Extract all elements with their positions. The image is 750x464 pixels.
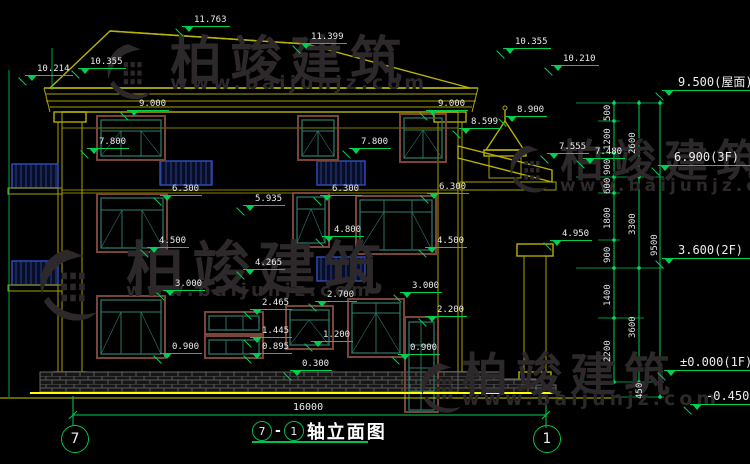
left-column bbox=[54, 112, 86, 393]
elevation-label: 4.800 bbox=[322, 225, 364, 237]
elevation-label: 2.200 bbox=[425, 305, 467, 317]
title-underline bbox=[252, 441, 368, 443]
storey-level-label: 6.900(3F) bbox=[658, 151, 750, 166]
storey-level-label: ±0.000(1F) bbox=[664, 356, 750, 371]
elevation-label: 0.900 bbox=[160, 342, 202, 354]
cad-canvas: 柏竣建筑 www.baijunjz.com 柏竣建筑 www.baijunjz.… bbox=[0, 0, 750, 464]
chain-dim: 900 bbox=[603, 159, 613, 175]
storey-level-label: -0.450 bbox=[690, 390, 750, 405]
elevation-label: 10.355 bbox=[78, 57, 126, 69]
chain-dim: 1200 bbox=[603, 128, 613, 150]
elevation-label: 10.214 bbox=[25, 64, 73, 76]
axis-bubble-right: 1 bbox=[533, 425, 561, 453]
total-width-dim: 16000 bbox=[293, 402, 323, 413]
elevation-label: 6.300 bbox=[160, 184, 202, 196]
elevation-label: 11.763 bbox=[182, 15, 230, 27]
storey-level-label: 3.600(2F) bbox=[662, 244, 750, 259]
window bbox=[356, 196, 436, 254]
title-axis-left: 7 bbox=[252, 421, 272, 441]
porch-column bbox=[517, 244, 553, 386]
elevation-label: 8.900 bbox=[505, 105, 547, 117]
chain-dim: 450 bbox=[635, 383, 645, 399]
porch-steps bbox=[458, 372, 556, 393]
ground-line bbox=[0, 393, 614, 398]
title-axis-right: 1 bbox=[284, 421, 304, 441]
window bbox=[286, 306, 333, 349]
title-dash: - bbox=[275, 423, 281, 439]
chain-dim: 9500 bbox=[650, 234, 660, 256]
elevation-label: 4.265 bbox=[243, 258, 285, 270]
elevation-label: 7.800 bbox=[87, 137, 129, 149]
elevation-label: 3.000 bbox=[163, 279, 205, 291]
elevation-label: 0.300 bbox=[290, 359, 332, 371]
elevation-label: 3.000 bbox=[400, 281, 442, 293]
porch-roof bbox=[458, 146, 556, 190]
elevation-label: 6.300 bbox=[320, 184, 362, 196]
elevation-label: 0.895 bbox=[250, 342, 292, 354]
chain-dim: 500 bbox=[603, 105, 613, 121]
cornice bbox=[44, 88, 478, 112]
elevation-label: 8.599 bbox=[459, 117, 501, 129]
window bbox=[400, 114, 446, 162]
elevation-label: 11.399 bbox=[299, 32, 347, 44]
storey-level-label: 9.500(屋面) bbox=[662, 76, 750, 91]
window bbox=[97, 296, 165, 358]
chain-dim: 1400 bbox=[603, 284, 613, 306]
elevation-label: 9.000 bbox=[127, 99, 169, 111]
elevation-label: 6.300 bbox=[427, 182, 469, 194]
elevation-label: 10.355 bbox=[503, 37, 551, 49]
chain-dim: 1800 bbox=[603, 207, 613, 229]
elevation-label: 4.500 bbox=[425, 236, 467, 248]
elevation-label: 7.800 bbox=[349, 137, 391, 149]
chain-dim: 2600 bbox=[628, 132, 638, 154]
chain-dim: 2200 bbox=[603, 340, 613, 362]
window bbox=[298, 116, 338, 160]
chain-dim: 3300 bbox=[628, 213, 638, 235]
elevation-label: 5.935 bbox=[243, 194, 285, 206]
chain-dim: 3600 bbox=[628, 316, 638, 338]
elevation-label: 4.950 bbox=[550, 229, 592, 241]
elevation-label: 1.200 bbox=[311, 330, 353, 342]
elevation-label: 4.500 bbox=[147, 236, 189, 248]
elevation-label: 1.445 bbox=[250, 326, 292, 338]
elevation-label: 2.465 bbox=[250, 298, 292, 310]
window bbox=[348, 299, 404, 357]
elevation-label: 2.700 bbox=[315, 290, 357, 302]
foundation-base bbox=[40, 372, 458, 392]
elevation-label: 0.900 bbox=[398, 343, 440, 355]
chain-dim: 900 bbox=[603, 247, 613, 263]
elevation-label: 9.000 bbox=[426, 99, 468, 111]
chain-dim: 600 bbox=[603, 178, 613, 194]
elevation-label: 10.210 bbox=[551, 54, 599, 66]
axis-bubble-left: 7 bbox=[61, 425, 89, 453]
